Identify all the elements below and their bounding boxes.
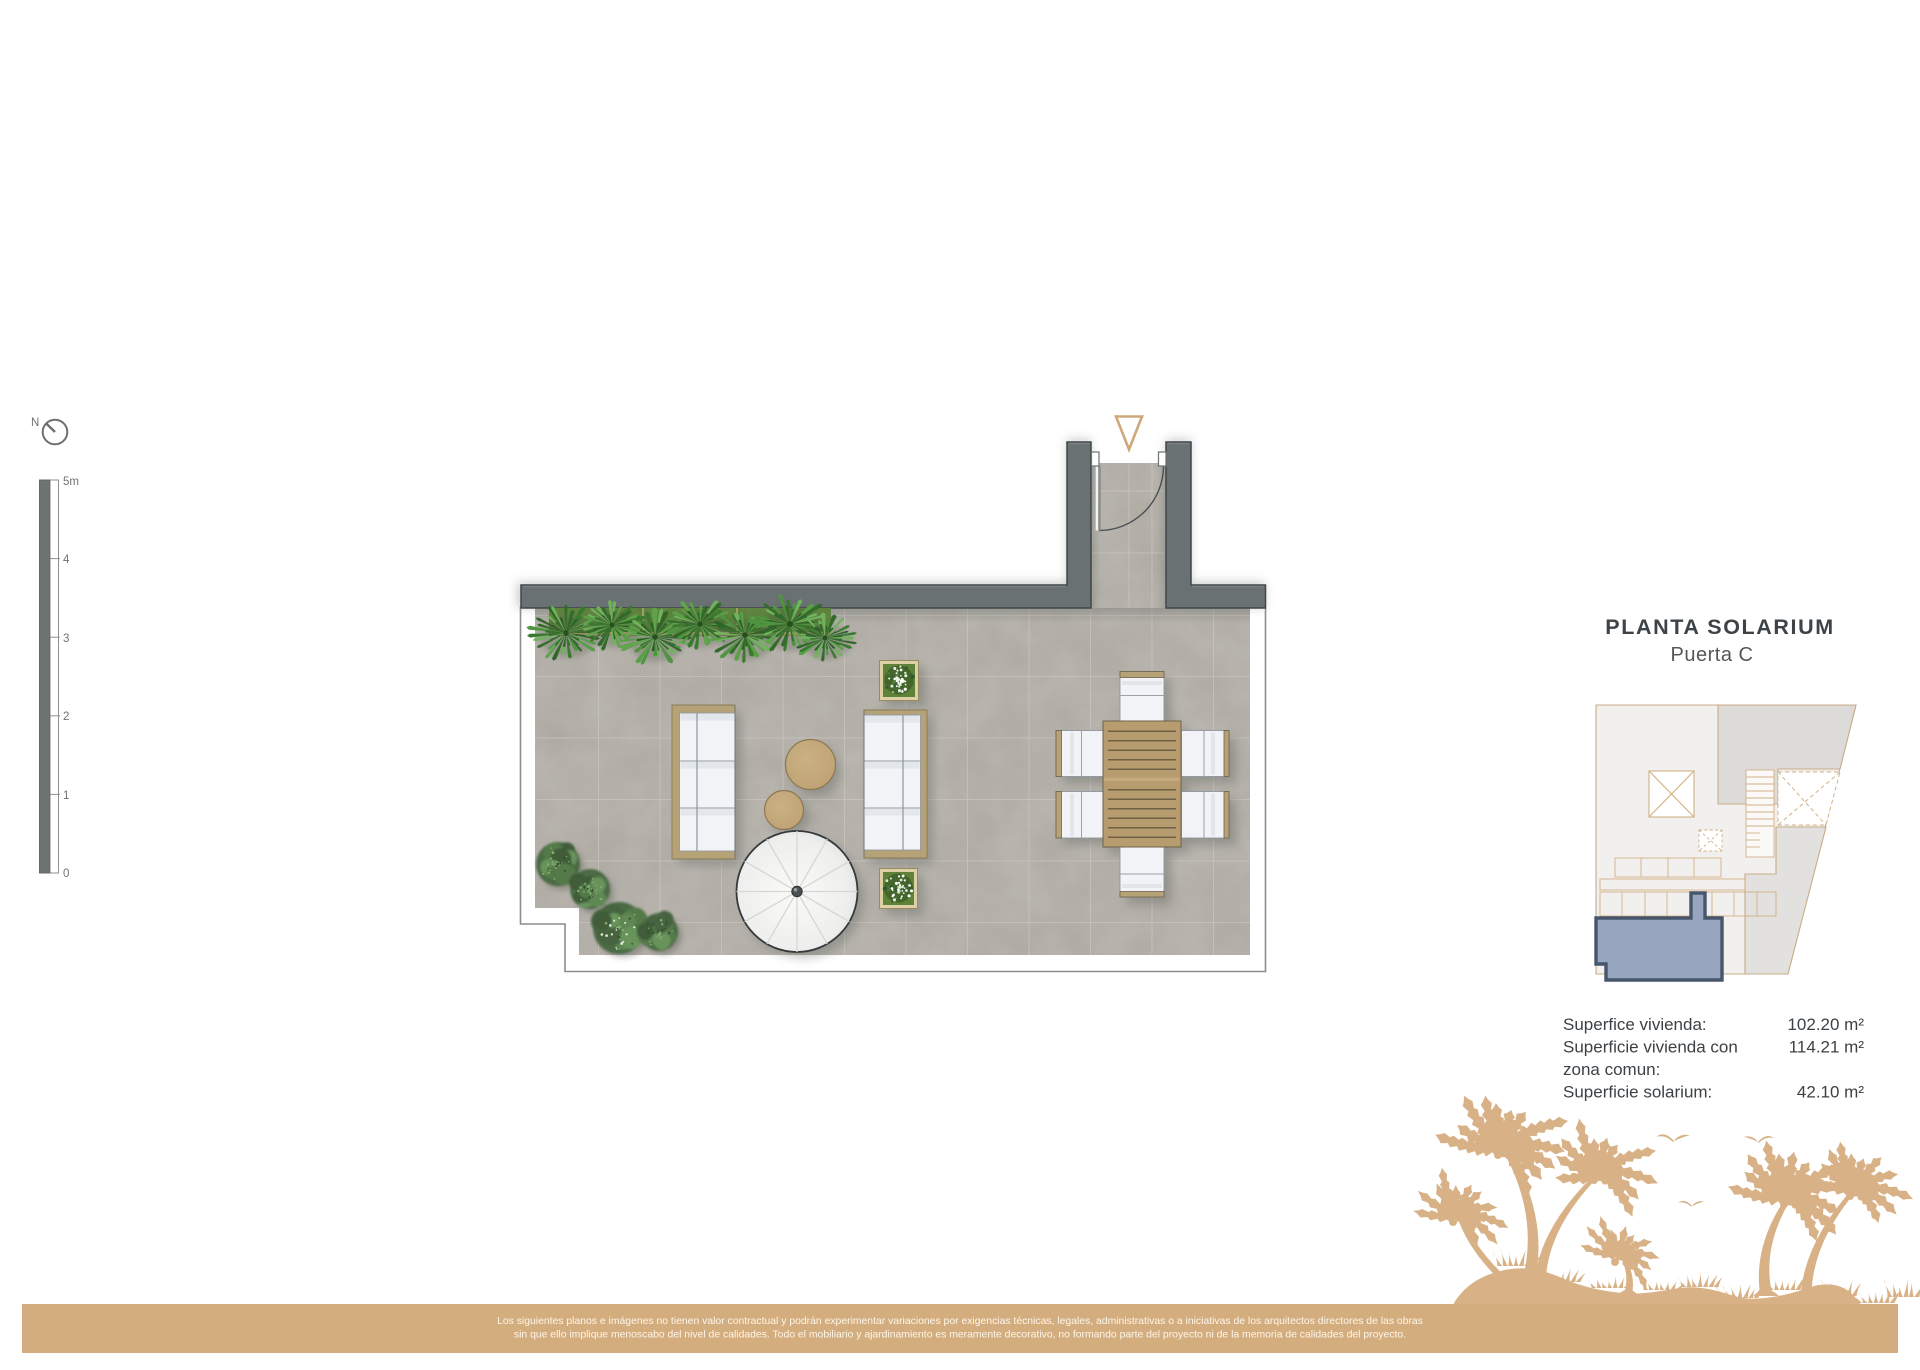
svg-text:0: 0 bbox=[63, 868, 69, 880]
svg-text:Los siguientes planos e imágen: Los siguientes planos e imágenes no tien… bbox=[497, 1316, 1423, 1327]
svg-text:102.20 m²: 102.20 m² bbox=[1787, 1015, 1864, 1034]
svg-text:114.21 m²: 114.21 m² bbox=[1789, 1038, 1865, 1057]
svg-text:Superficie vivienda con: Superficie vivienda con bbox=[1563, 1038, 1738, 1057]
svg-text:5m: 5m bbox=[63, 476, 79, 488]
svg-text:Puerta C: Puerta C bbox=[1671, 644, 1754, 666]
svg-text:zona comun:: zona comun: bbox=[1563, 1060, 1660, 1079]
svg-text:4: 4 bbox=[63, 554, 70, 566]
svg-text:2: 2 bbox=[63, 711, 69, 723]
svg-text:42.10 m²: 42.10 m² bbox=[1797, 1083, 1864, 1102]
svg-text:1: 1 bbox=[63, 790, 69, 802]
svg-text:Superfice vivienda:: Superfice vivienda: bbox=[1563, 1015, 1707, 1034]
svg-text:sin que ello implique menoscab: sin que ello implique menoscabo del nive… bbox=[514, 1330, 1406, 1341]
svg-text:3: 3 bbox=[63, 633, 69, 645]
svg-text:Superficie solarium:: Superficie solarium: bbox=[1563, 1083, 1712, 1102]
svg-text:PLANTA SOLARIUM: PLANTA SOLARIUM bbox=[1605, 615, 1834, 639]
svg-text:N: N bbox=[31, 417, 39, 429]
